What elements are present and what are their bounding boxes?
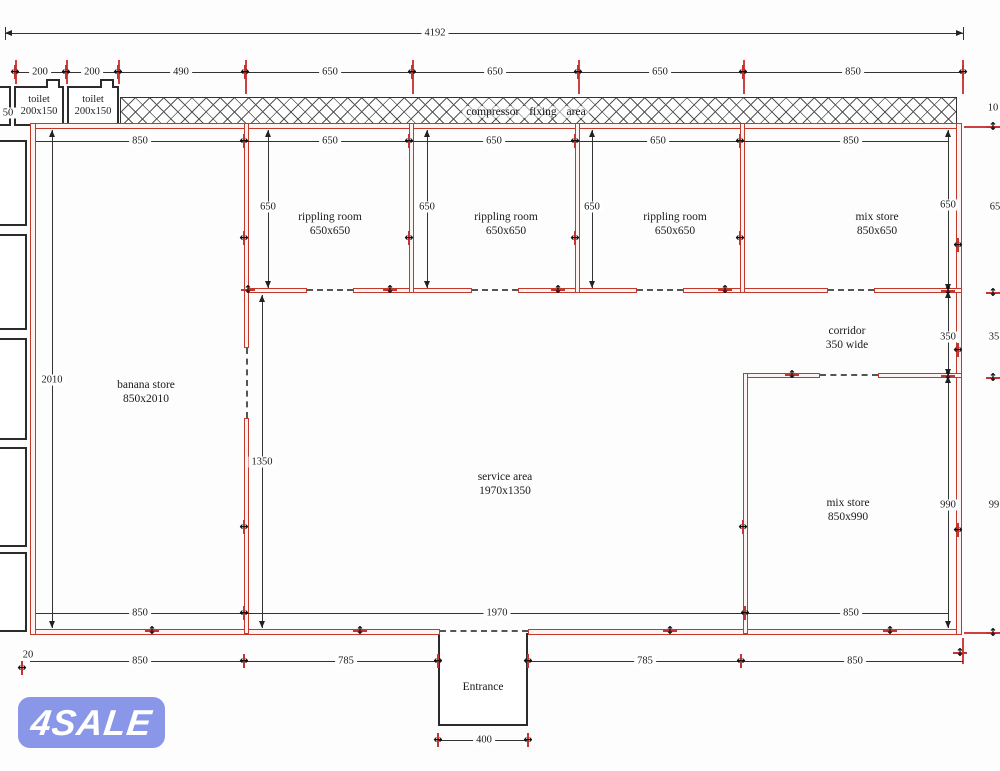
dim-label-cut: 20 xyxy=(20,650,37,661)
wall-tick xyxy=(430,732,446,748)
wall-tick xyxy=(144,623,160,639)
wall-tick xyxy=(570,64,586,80)
wall-tick xyxy=(236,230,252,246)
wall-tick xyxy=(940,368,956,384)
wall-tick xyxy=(985,625,1000,641)
door-opening xyxy=(828,289,874,291)
wall-tick xyxy=(7,64,23,80)
door-opening xyxy=(472,289,518,291)
wall-tick xyxy=(240,282,256,298)
wall xyxy=(683,288,828,293)
wall-tick xyxy=(401,230,417,246)
wall-tick xyxy=(567,133,583,149)
wall-tick xyxy=(520,732,536,748)
dim-arrowhead xyxy=(589,281,595,288)
wall-tick xyxy=(567,230,583,246)
dim-label: 2010 xyxy=(39,375,66,386)
dim-label: 490 xyxy=(170,67,192,78)
door-opening xyxy=(637,289,683,291)
dim-label-cut: 65 xyxy=(987,202,1000,213)
door-opening xyxy=(246,348,248,418)
dim-end-bar xyxy=(963,27,964,40)
wall-tick xyxy=(236,605,252,621)
toilet-room-partial xyxy=(0,86,11,126)
forsale-watermark-logo: 4SALE xyxy=(18,697,165,748)
room-name: banana store xyxy=(117,378,175,392)
dim-label: 350 xyxy=(937,332,959,343)
dim-label: 650 xyxy=(649,67,671,78)
door-opening xyxy=(440,630,528,632)
wall xyxy=(743,373,748,634)
wall-tick xyxy=(236,653,252,669)
wall-tick xyxy=(784,367,800,383)
dim-arrowhead xyxy=(259,295,265,302)
room-label-corridor: corridor350 wide xyxy=(826,324,868,352)
dim-label: 850 xyxy=(844,656,866,667)
entrance-label: Entrance xyxy=(463,681,504,693)
room-name: service area xyxy=(478,470,533,484)
dim-arrowhead xyxy=(265,130,271,137)
room-label-rippling-room-1: rippling room650x650 xyxy=(298,210,362,238)
wall-tick xyxy=(735,519,751,535)
toilet-1-label: toilet xyxy=(28,94,50,106)
toilet-1-size: 200x150 xyxy=(21,106,58,118)
wall-tick xyxy=(520,653,536,669)
wall xyxy=(30,123,962,129)
room-size: 350 wide xyxy=(826,338,868,352)
wall-tick xyxy=(662,623,678,639)
dim-label-cut: 35 xyxy=(986,332,1000,343)
wall-tick xyxy=(952,645,968,661)
wall-tick xyxy=(717,282,733,298)
dim-arrowhead xyxy=(945,621,951,628)
dim-label: 990 xyxy=(937,500,959,511)
wall-tick xyxy=(735,64,751,80)
dim-label: 1970 xyxy=(484,608,511,619)
dim-label: 650 xyxy=(483,136,505,147)
toilet-1-door-notch xyxy=(46,79,60,88)
wall-tick xyxy=(236,133,252,149)
wall-tick xyxy=(382,282,398,298)
wall-tick xyxy=(985,370,1000,386)
compressor-fixing-area: compressor fixing area xyxy=(120,97,957,126)
wall xyxy=(30,629,440,635)
wall-tick xyxy=(732,133,748,149)
dim-line xyxy=(5,33,963,34)
dim-label: 850 xyxy=(129,608,151,619)
dim-label: 650 xyxy=(319,136,341,147)
dim-label: 200 xyxy=(81,67,103,78)
room-size: 850x2010 xyxy=(117,392,175,406)
dim-label: 400 xyxy=(473,735,495,746)
room-size: 850x990 xyxy=(826,510,869,524)
room-label-mix-store-bottom: mix store850x990 xyxy=(826,496,869,524)
room-size: 650x650 xyxy=(474,224,538,238)
dim-label: 650 xyxy=(647,136,669,147)
wall-tick xyxy=(950,237,966,253)
wall-tick xyxy=(110,64,126,80)
dim-label: 785 xyxy=(634,656,656,667)
door-opening xyxy=(820,374,878,376)
wall-tick xyxy=(950,342,966,358)
wall xyxy=(30,123,36,635)
dim-label: 850 xyxy=(129,656,151,667)
wall-tick xyxy=(237,64,253,80)
wall-tick xyxy=(882,623,898,639)
toilet-room-2: toilet 200x150 xyxy=(67,86,119,126)
wall xyxy=(745,373,820,378)
dim-line xyxy=(948,130,949,291)
room-name: mix store xyxy=(826,496,869,510)
dim-label: 200 xyxy=(29,67,51,78)
wall-tick xyxy=(733,653,749,669)
room-label-service-area: service area1970x1350 xyxy=(478,470,533,498)
dim-arrowhead xyxy=(424,281,430,288)
dim-label: 650 xyxy=(416,202,438,213)
wall-tick xyxy=(985,285,1000,301)
wall-tick xyxy=(236,519,252,535)
room-label-rippling-room-3: rippling room650x650 xyxy=(643,210,707,238)
wall-tick xyxy=(430,653,446,669)
room-label-rippling-room-2: rippling room650x650 xyxy=(474,210,538,238)
dim-arrowhead xyxy=(956,30,963,36)
dim-label: 850 xyxy=(840,608,862,619)
wall-tick xyxy=(14,660,30,676)
room-name: rippling room xyxy=(298,210,362,224)
dim-label-cut: 10 xyxy=(985,103,1000,114)
wall-tick xyxy=(955,64,971,80)
dim-label: 850 xyxy=(840,136,862,147)
entrance-box xyxy=(438,633,528,726)
dim-label: 4192 xyxy=(422,28,449,39)
storage-stall xyxy=(0,234,27,330)
wall-tick xyxy=(404,64,420,80)
dim-arrowhead xyxy=(589,130,595,137)
room-size: 850x650 xyxy=(855,224,898,238)
dim-arrowhead xyxy=(945,130,951,137)
wall-tick xyxy=(737,605,753,621)
room-label-banana-store: banana store850x2010 xyxy=(117,378,175,406)
toilet-2-size: 200x150 xyxy=(75,106,112,118)
room-size: 650x650 xyxy=(298,224,362,238)
dim-label-cut: 99 xyxy=(986,500,1000,511)
storage-stall xyxy=(0,140,27,226)
room-size: 650x650 xyxy=(643,224,707,238)
room-size: 1970x1350 xyxy=(478,484,533,498)
dim-label: 650 xyxy=(484,67,506,78)
room-label-mix-store-top: mix store850x650 xyxy=(855,210,898,238)
dim-label: 1350 xyxy=(249,457,276,468)
dim-label-cut: 50 xyxy=(0,108,16,119)
wall-tick xyxy=(58,64,74,80)
dim-arrowhead xyxy=(265,281,271,288)
storage-stall xyxy=(0,338,27,440)
door-opening xyxy=(307,289,353,291)
storage-stall xyxy=(0,552,27,632)
dim-arrowhead xyxy=(424,130,430,137)
room-name: rippling room xyxy=(474,210,538,224)
wall-tick xyxy=(940,283,956,299)
forsale-logo-text: 4SALE xyxy=(28,702,154,744)
wall-tick xyxy=(950,522,966,538)
wall-tick xyxy=(732,230,748,246)
dim-label: 650 xyxy=(319,67,341,78)
dim-label: 850 xyxy=(842,67,864,78)
dim-arrowhead xyxy=(259,621,265,628)
dim-arrowhead xyxy=(5,30,12,36)
toilet-2-label: toilet xyxy=(82,94,104,106)
wall-tick xyxy=(985,119,1000,135)
dim-label: 650 xyxy=(937,200,959,211)
wall-tick xyxy=(550,282,566,298)
storage-stall xyxy=(0,447,27,547)
compressor-area-label: compressor fixing area xyxy=(462,106,589,118)
dim-label: 650 xyxy=(257,202,279,213)
dim-label: 650 xyxy=(581,202,603,213)
dim-label: 785 xyxy=(335,656,357,667)
dim-arrowhead xyxy=(49,621,55,628)
room-name: corridor xyxy=(826,324,868,338)
dim-arrowhead xyxy=(49,130,55,137)
room-name: mix store xyxy=(855,210,898,224)
wall-tick xyxy=(352,623,368,639)
dim-label: 850 xyxy=(129,136,151,147)
toilet-2-door-notch xyxy=(100,79,114,88)
toilet-room-1: toilet 200x150 xyxy=(14,86,64,126)
wall-tick xyxy=(401,133,417,149)
room-name: rippling room xyxy=(643,210,707,224)
floor-plan: compressor fixing area toilet 200x150 to… xyxy=(0,0,1000,771)
